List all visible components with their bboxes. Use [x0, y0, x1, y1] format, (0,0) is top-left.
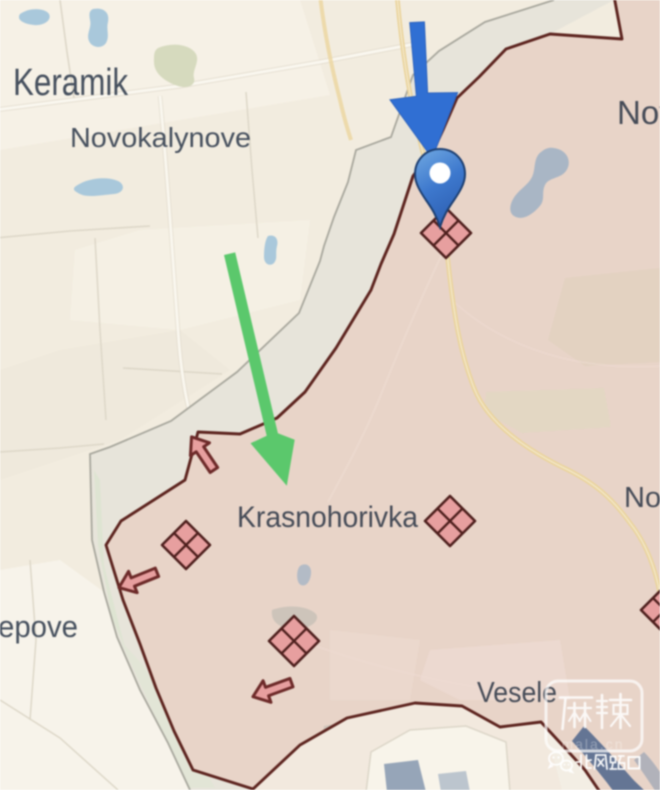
- svg-text:Novokalynove: Novokalynove: [70, 122, 251, 153]
- svg-text:Krasnohorivka: Krasnohorivka: [237, 501, 418, 534]
- svg-text:Keramik: Keramik: [13, 62, 129, 104]
- svg-text:epove: epove: [0, 609, 78, 644]
- svg-text:Nov: Nov: [617, 94, 660, 131]
- svg-text:mala.cn: mala.cn: [561, 736, 624, 752]
- svg-text:No: No: [624, 482, 660, 514]
